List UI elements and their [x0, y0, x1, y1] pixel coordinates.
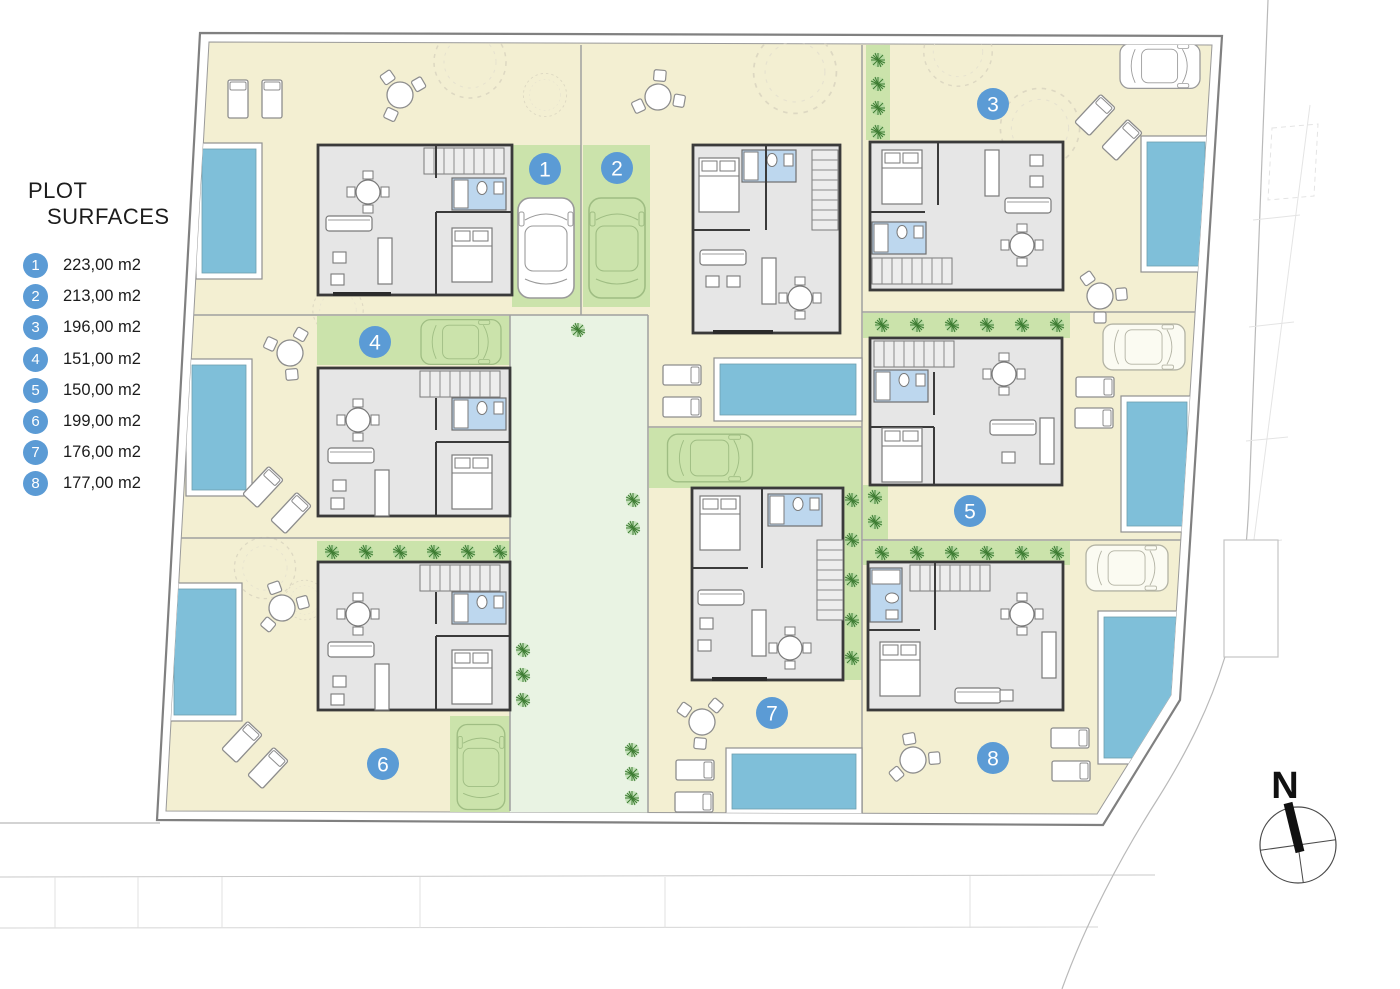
sofa-icon [328, 448, 374, 463]
bathroom-icon [872, 222, 926, 254]
legend-item-4: 4151,00 m2 [23, 344, 170, 375]
pool-plot-2 [714, 358, 862, 421]
bathroom-icon [768, 494, 822, 526]
sun-lounger-icon [663, 397, 701, 417]
sofa-icon [1005, 198, 1051, 213]
cabinet-icon [752, 610, 766, 656]
table-icon [1030, 176, 1043, 187]
bed-icon [882, 150, 922, 204]
plan-badge-7-number: 7 [766, 703, 778, 726]
plot-surfaces-legend: PLOT SURFACES 1223,00 m2 2213,00 m2 3196… [23, 178, 170, 500]
house-plot-8 [868, 562, 1063, 710]
plan-badge-3-number: 3 [987, 94, 999, 117]
bed-icon [452, 650, 492, 704]
legend-item-7: 7176,00 m2 [23, 437, 170, 468]
legend-item-1: 1223,00 m2 [23, 250, 170, 281]
plot-7-plant-strip [843, 428, 862, 680]
neighbor-parcel-dashed [1268, 124, 1318, 200]
cabinet-icon [375, 664, 389, 710]
plot-3-badge: 3 [23, 315, 48, 340]
plant-icon [1015, 546, 1029, 560]
cabinet-icon [375, 470, 389, 516]
sidewalk-line [0, 875, 1155, 877]
plant-icon [427, 545, 441, 559]
plot-7-area-label: 176,00 m2 [63, 443, 141, 462]
plant-icon [626, 493, 640, 507]
pool-plot-8 [1098, 611, 1182, 764]
bathroom-icon [452, 398, 506, 430]
legend-item-3: 3196,00 m2 [23, 312, 170, 343]
table-icon [706, 276, 719, 287]
central-walkway [510, 315, 648, 813]
neighbor-building [1224, 540, 1278, 657]
plant-icon [571, 323, 585, 337]
sun-lounger-icon [676, 760, 714, 780]
sidewalk-joints [55, 876, 970, 928]
plan-badge-plot-5: 5 [954, 495, 986, 527]
sofa-icon [698, 590, 744, 605]
cabinet-icon [762, 258, 776, 304]
house-plot-5 [870, 338, 1062, 485]
plant-icon [871, 101, 885, 115]
plot-7-badge: 7 [23, 440, 48, 465]
plant-icon [875, 546, 889, 560]
entrance-mark [713, 330, 773, 334]
sofa-icon [700, 250, 746, 265]
plant-icon [359, 545, 373, 559]
bathroom-icon [874, 370, 928, 402]
sun-lounger-icon [663, 365, 701, 385]
plot-8-badge: 8 [23, 471, 48, 496]
table-icon [700, 618, 713, 629]
north-label: N [1271, 765, 1298, 807]
plot-5-area-label: 150,00 m2 [63, 381, 141, 400]
plant-icon [516, 668, 530, 682]
house-plot-3 [870, 142, 1063, 290]
house-plot-6 [318, 562, 510, 710]
plant-icon [980, 318, 994, 332]
plant-icon [845, 651, 859, 665]
plant-icon [845, 613, 859, 627]
plant-icon [393, 545, 407, 559]
cabinet-icon [985, 150, 999, 196]
plot-7-parking-strip [649, 428, 862, 488]
legend-items: 1223,00 m2 2213,00 m2 3196,00 m2 4151,00… [23, 250, 170, 500]
plot-5-plant-strip [863, 313, 1070, 338]
plant-icon [516, 643, 530, 657]
plant-icon [845, 573, 859, 587]
plan-badge-5-number: 5 [964, 501, 976, 524]
plant-icon [945, 318, 959, 332]
sofa-icon [326, 216, 372, 231]
plot-2-area-label: 213,00 m2 [63, 287, 141, 306]
table-icon [1002, 452, 1015, 463]
sofa-icon [328, 642, 374, 657]
plant-icon [945, 546, 959, 560]
plot-1-area-label: 223,00 m2 [63, 256, 141, 275]
sun-lounger-icon [675, 792, 713, 812]
plan-badge-plot-1: 1 [529, 153, 561, 185]
plant-icon [1050, 546, 1064, 560]
bed-icon [452, 455, 492, 509]
plot-4-area-label: 151,00 m2 [63, 350, 141, 369]
legend-item-2: 2213,00 m2 [23, 281, 170, 312]
entrance-mark [333, 292, 391, 296]
legend-item-5: 5150,00 m2 [23, 375, 170, 406]
plant-icon [1015, 318, 1029, 332]
table-icon [1030, 155, 1043, 166]
plant-icon [868, 515, 882, 529]
sofa-icon [990, 420, 1036, 435]
sidewalk-line [0, 927, 1098, 928]
bed-icon [699, 158, 739, 212]
cabinet-icon [1042, 632, 1056, 678]
bathroom-icon [742, 150, 796, 182]
plant-icon [625, 791, 639, 805]
pool-plot-4 [186, 359, 252, 496]
sun-lounger-icon [1052, 761, 1090, 781]
neighbor-parcel-ticks [1243, 215, 1300, 545]
plant-icon [845, 493, 859, 507]
table-icon [333, 480, 346, 491]
sofa-icon [955, 688, 1001, 703]
plan-badge-4-number: 4 [369, 332, 381, 355]
bathroom-icon [452, 178, 506, 210]
table-icon [1000, 690, 1013, 701]
plant-icon [516, 693, 530, 707]
plot-2-badge: 2 [23, 284, 48, 309]
bed-icon [882, 428, 922, 482]
stairs-icon [812, 150, 838, 230]
legend-title-line1: PLOT [28, 178, 170, 204]
site-plan-page: PLOT SURFACES 1223,00 m2 2213,00 m2 3196… [0, 0, 1400, 989]
plan-badge-1-number: 1 [539, 159, 551, 182]
table-icon [333, 252, 346, 263]
stairs-icon [910, 565, 990, 591]
plant-icon [871, 125, 885, 139]
plot-8-area-label: 177,00 m2 [63, 474, 141, 493]
house-plot-1 [318, 145, 512, 296]
neighbor-parcel-line [1252, 105, 1310, 555]
plant-icon [625, 767, 639, 781]
plan-badge-8-number: 8 [987, 748, 999, 771]
plant-icon [868, 490, 882, 504]
plot-5-badge: 5 [23, 378, 48, 403]
plan-badge-plot-7: 7 [756, 697, 788, 729]
pool-plot-6 [168, 583, 242, 721]
table-icon [331, 498, 344, 509]
sun-lounger-icon [228, 80, 248, 118]
plan-badge-plot-2: 2 [601, 152, 633, 184]
legend-item-8: 8177,00 m2 [23, 468, 170, 499]
cabinet-icon [1040, 418, 1054, 464]
plot-6-badge: 6 [23, 409, 48, 434]
house-plot-7 [692, 488, 843, 681]
plot-6-area-label: 199,00 m2 [63, 412, 141, 431]
plant-icon [493, 545, 507, 559]
legend-title-line2: SURFACES [47, 204, 170, 230]
bed-icon [880, 642, 920, 696]
plant-icon [980, 546, 994, 560]
plot-1-badge: 1 [23, 253, 48, 278]
plant-icon [871, 53, 885, 67]
stairs-icon [420, 565, 500, 591]
stairs-icon [872, 258, 952, 284]
site-plan-drawing: 1 2 3 4 5 6 7 8 N [0, 0, 1400, 989]
plot-3-area-label: 196,00 m2 [63, 318, 141, 337]
bed-icon [700, 496, 740, 550]
pool-plot-7 [726, 748, 862, 815]
house-plot-2 [693, 145, 840, 334]
stairs-icon [420, 371, 500, 397]
plan-badge-2-number: 2 [611, 158, 623, 181]
sun-lounger-icon [1075, 408, 1113, 428]
plan-badge-plot-3: 3 [977, 88, 1009, 120]
plot-4-parking-strip [317, 316, 510, 365]
car-icon-plot-3 [1120, 44, 1200, 89]
pool-plot-5 [1121, 396, 1193, 532]
table-icon [331, 274, 344, 285]
sun-lounger-icon [262, 80, 282, 118]
plot-6-parking-strip [450, 716, 510, 813]
north-arrow: N [1255, 765, 1341, 888]
plant-icon [875, 318, 889, 332]
car-icon-plot-5 [1103, 324, 1185, 370]
plan-badge-plot-6: 6 [367, 748, 399, 780]
plant-icon [910, 318, 924, 332]
legend-item-6: 6199,00 m2 [23, 406, 170, 437]
car-icon-plot-8 [1086, 545, 1168, 591]
plant-icon [845, 533, 859, 547]
plant-icon [1050, 318, 1064, 332]
plant-icon [461, 545, 475, 559]
pool-plot-1 [196, 143, 262, 279]
sun-lounger-icon [1076, 377, 1114, 397]
bathroom-icon [452, 592, 506, 624]
sun-lounger-icon [1051, 728, 1089, 748]
stairs-icon [817, 540, 843, 620]
bed-icon [452, 228, 492, 282]
plant-icon [325, 545, 339, 559]
plan-badge-plot-4: 4 [359, 326, 391, 358]
plan-badge-plot-8: 8 [977, 742, 1009, 774]
house-plot-4 [318, 368, 510, 516]
table-icon [333, 676, 346, 687]
plant-icon [626, 521, 640, 535]
plant-icon [910, 546, 924, 560]
cabinet-icon [378, 238, 392, 284]
stairs-icon [874, 341, 954, 367]
plan-badge-6-number: 6 [377, 754, 389, 777]
table-icon [727, 276, 740, 287]
car-icon-plot-1 [518, 198, 574, 298]
plant-icon [871, 77, 885, 91]
compass-needle [1288, 803, 1300, 852]
plant-icon [625, 743, 639, 757]
table-icon [698, 640, 711, 651]
table-icon [331, 694, 344, 705]
bathroom-icon [870, 568, 902, 622]
plot-4-badge: 4 [23, 347, 48, 372]
entrance-mark [712, 677, 767, 681]
